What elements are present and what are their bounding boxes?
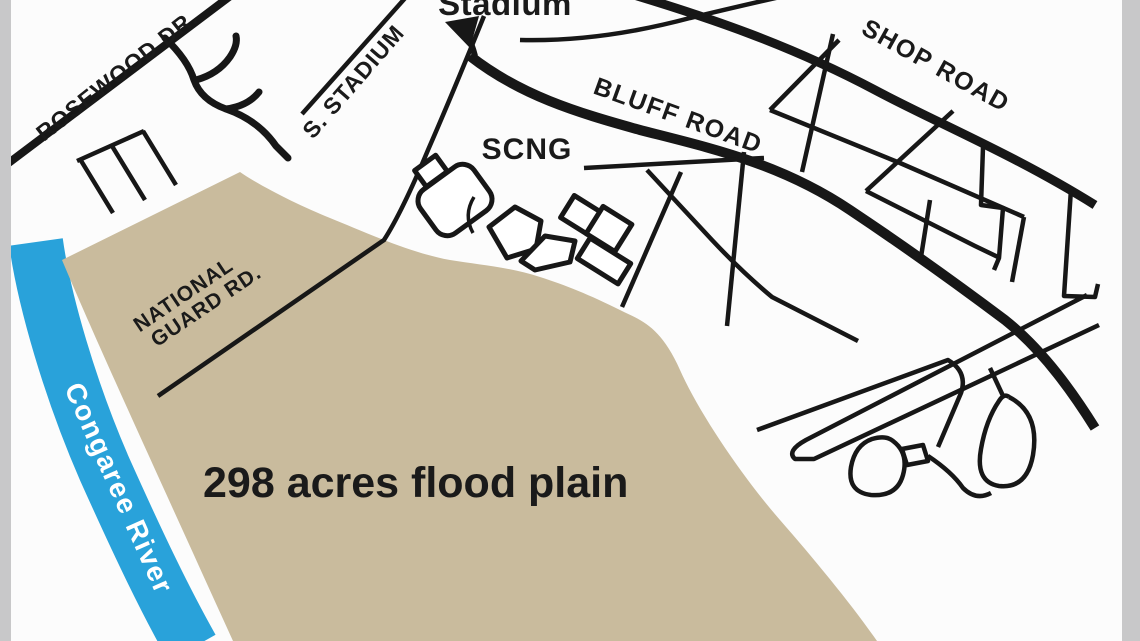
street-map: Stadium ROSEWOOD DR. S. STADIUM SCNG BLU…: [0, 0, 1140, 641]
scng-label: SCNG: [482, 133, 573, 166]
map-canvas: Stadium ROSEWOOD DR. S. STADIUM SCNG BLU…: [0, 0, 1140, 641]
stadium-label: Stadium: [438, 0, 572, 22]
left-edge-strip: [0, 0, 11, 641]
right-edge-strip: [1122, 0, 1140, 641]
flood-plain-label: 298 acres flood plain: [203, 459, 628, 507]
